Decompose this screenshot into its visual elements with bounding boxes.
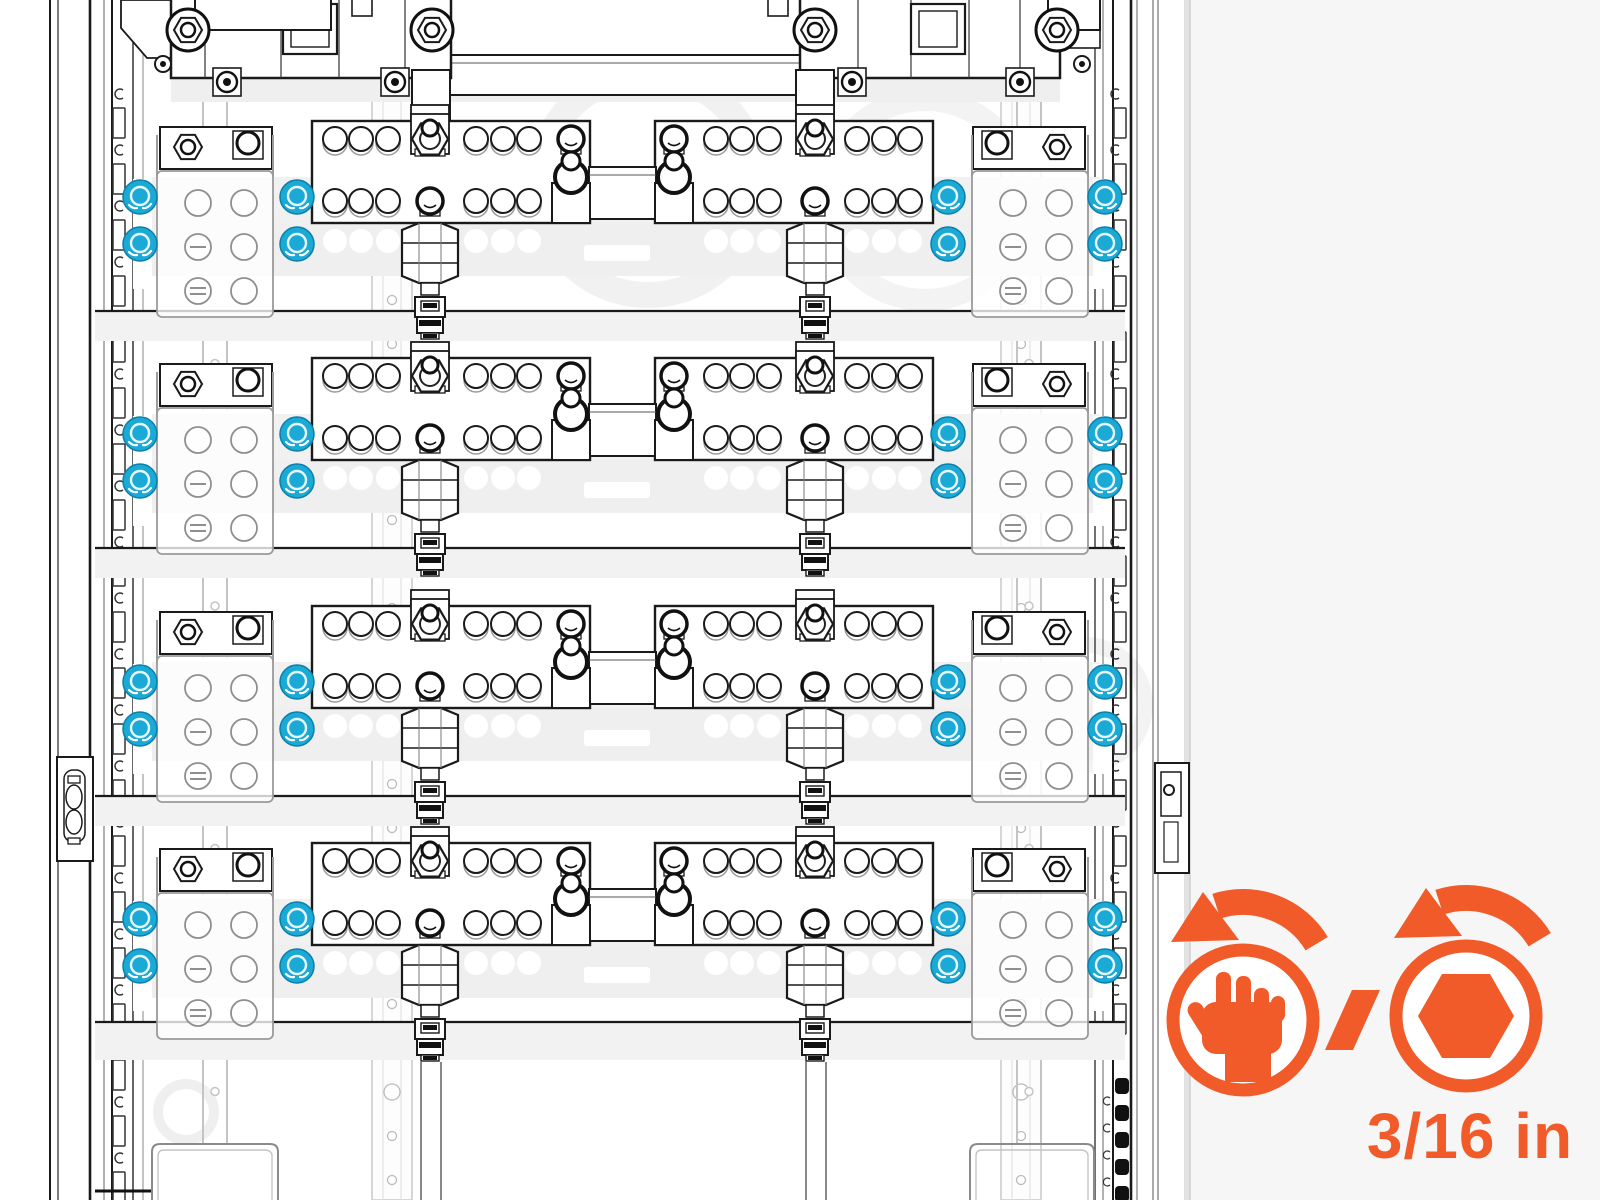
- left-terminal-block: [157, 364, 273, 554]
- highlighted-nut: [931, 180, 965, 214]
- highlighted-nut: [280, 417, 314, 451]
- highlighted-nut: [123, 665, 157, 699]
- hex-size-label: 3/16 in: [1367, 1100, 1573, 1172]
- highlighted-nut: [280, 712, 314, 746]
- highlighted-nut: [1088, 464, 1122, 498]
- highlighted-nut: [931, 712, 965, 746]
- highlighted-nut: [280, 227, 314, 261]
- highlighted-nut: [123, 902, 157, 936]
- highlighted-nut: [1088, 180, 1122, 214]
- highlighted-nut: [280, 180, 314, 214]
- highlighted-nut: [931, 902, 965, 936]
- right-terminal-block: [972, 127, 1088, 317]
- highlighted-nut: [280, 464, 314, 498]
- cabinet-busbar-diagram: 3/16 in: [0, 0, 1600, 1200]
- highlighted-nut: [280, 902, 314, 936]
- left-latch: [57, 757, 93, 861]
- left-terminal-block: [157, 612, 273, 802]
- highlighted-nut: [931, 949, 965, 983]
- highlighted-nut: [123, 180, 157, 214]
- highlighted-nut: [123, 949, 157, 983]
- left-terminal-block: [157, 127, 273, 317]
- highlighted-nut: [280, 949, 314, 983]
- highlighted-nut: [1088, 417, 1122, 451]
- right-latch: [1155, 763, 1189, 873]
- installation-illustration: 3/16 in: [0, 0, 1600, 1200]
- highlighted-nut: [931, 665, 965, 699]
- highlighted-nut: [1088, 665, 1122, 699]
- right-terminal-block: [972, 849, 1088, 1039]
- highlighted-nut: [931, 464, 965, 498]
- highlighted-nut: [280, 665, 314, 699]
- highlighted-nut: [123, 464, 157, 498]
- right-terminal-block: [972, 612, 1088, 802]
- highlighted-nut: [1088, 949, 1122, 983]
- highlighted-nut: [123, 417, 157, 451]
- highlighted-nut: [931, 417, 965, 451]
- highlighted-nut: [931, 227, 965, 261]
- highlighted-nut: [1088, 227, 1122, 261]
- highlighted-nut: [1088, 712, 1122, 746]
- highlighted-nut: [123, 712, 157, 746]
- right-terminal-block: [972, 364, 1088, 554]
- left-terminal-block: [157, 849, 273, 1039]
- highlighted-nut: [1088, 902, 1122, 936]
- highlighted-nut: [123, 227, 157, 261]
